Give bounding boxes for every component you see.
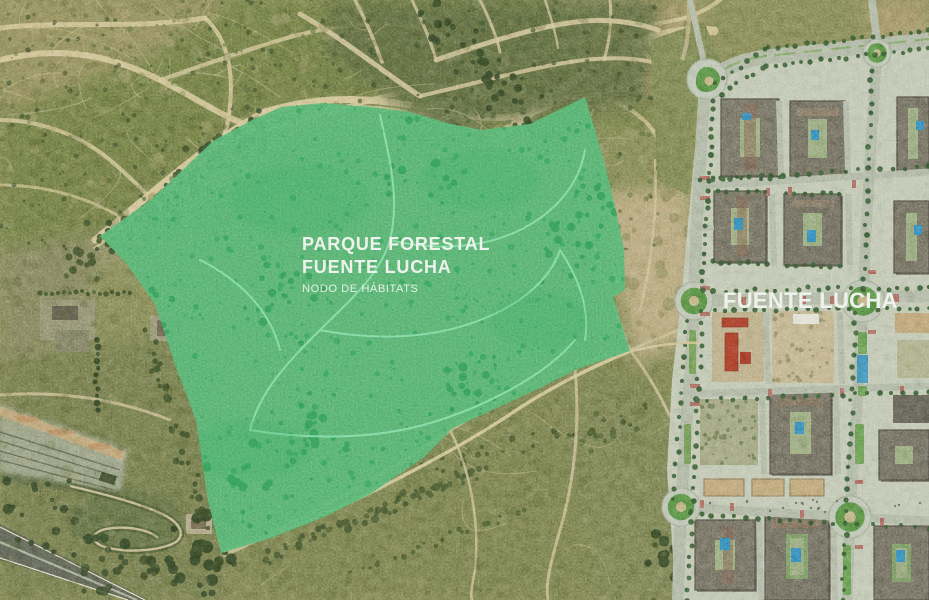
svg-text:NODO DE HÁBITATS: NODO DE HÁBITATS [302, 282, 418, 295]
svg-text:FUENTE LUCHA: FUENTE LUCHA [723, 288, 898, 313]
svg-text:FUENTE LUCHA: FUENTE LUCHA [302, 257, 452, 277]
svg-text:PARQUE FORESTAL: PARQUE FORESTAL [302, 234, 490, 254]
